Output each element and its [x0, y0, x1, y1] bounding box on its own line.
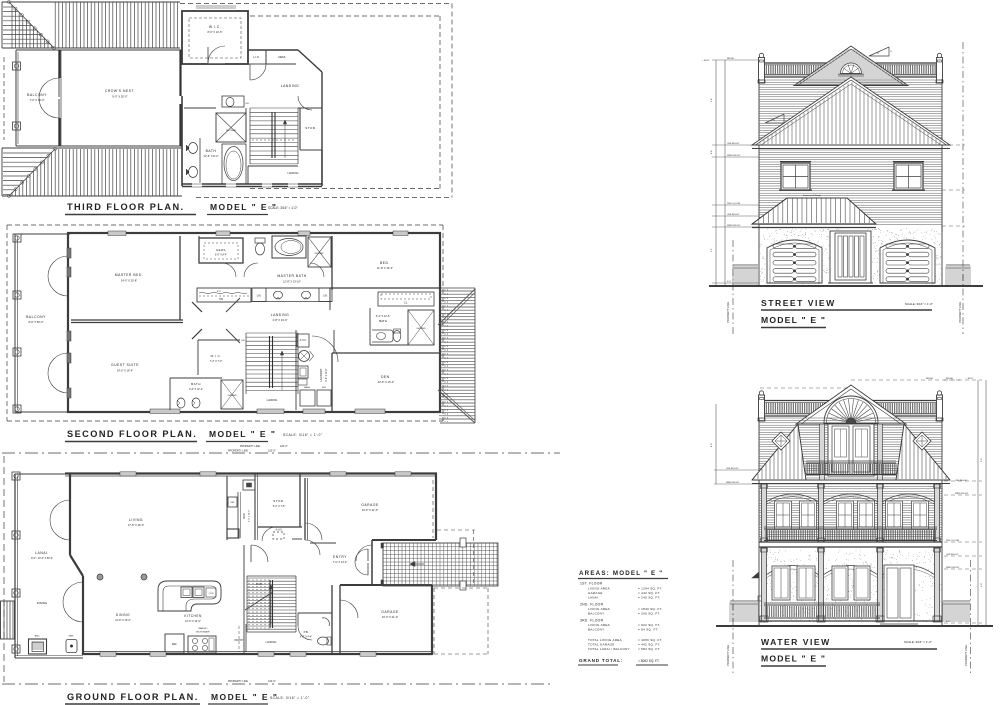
svg-text:SHOWER: SHOWER	[417, 328, 427, 330]
svg-text:PROPERTY LINE.: PROPERTY LINE.	[964, 644, 968, 666]
svg-text:DINING: DINING	[37, 601, 48, 605]
svg-text:WINDOW HT.: WINDOW HT.	[727, 155, 741, 157]
svg-text:8'-6" / 10'-0" X 50'-0": 8'-6" / 10'-0" X 50'-0"	[31, 557, 53, 560]
svg-text:LIVING AREA: LIVING AREA	[588, 607, 610, 611]
svg-text:WINDOW HT.: WINDOW HT.	[726, 482, 740, 484]
svg-text:9'-0": 9'-0"	[981, 583, 983, 587]
svg-text:6'-0" X 12'-4": 6'-0" X 12'-4"	[189, 388, 203, 391]
svg-text:DEN.: DEN.	[381, 375, 391, 379]
svg-text:TOTAL LIVING AREA: TOTAL LIVING AREA	[588, 638, 622, 642]
svg-text:RANGE /: RANGE /	[199, 627, 208, 630]
svg-text:MODEL " E ": MODEL " E "	[761, 654, 826, 664]
svg-text:BBQ: BBQ	[35, 636, 40, 638]
svg-text:120'-0": 120'-0"	[268, 450, 276, 453]
svg-text:WASH: WASH	[304, 386, 311, 389]
svg-text:= 84 SQ. FT.: = 84 SQ. FT.	[638, 628, 659, 632]
svg-text:120'-0": 120'-0"	[280, 445, 288, 448]
svg-text:7'-0" X 16'-0": 7'-0" X 16'-0"	[30, 98, 45, 102]
svg-text:BATH: BATH	[206, 149, 217, 153]
svg-text:CEILING HT.: CEILING HT.	[946, 554, 959, 556]
svg-text:0'-0": 0'-0"	[727, 281, 732, 283]
svg-text:PROPERTY LINE: PROPERTY LINE	[228, 680, 248, 683]
svg-text:PROPERTY LINE: PROPERTY LINE	[240, 445, 260, 448]
svg-text:PANTRY: PANTRY	[234, 639, 244, 642]
svg-text:2ND. FLOOR: 2ND. FLOOR	[727, 203, 741, 205]
svg-text:CEILING HT.: CEILING HT.	[726, 468, 739, 470]
svg-text:= 922 SQ. FT.: = 922 SQ. FT.	[638, 623, 661, 627]
svg-text:14'-0" X 16'-4": 14'-0" X 16'-4"	[117, 369, 133, 373]
svg-text:= 5082 SQ. FT.: = 5082 SQ. FT.	[638, 659, 660, 663]
svg-text:LANAI: LANAI	[588, 596, 598, 600]
svg-text:= 442 SQ. FT.: = 442 SQ. FT.	[638, 591, 661, 595]
svg-text:W.I.C.: W.I.C.	[210, 354, 221, 358]
svg-text:CL.: CL.	[404, 302, 408, 305]
svg-text:14'-0" X 20'-8": 14'-0" X 20'-8"	[121, 279, 137, 283]
svg-text:SECOND FLOOR PLAN.: SECOND FLOOR PLAN.	[67, 429, 197, 439]
svg-text:DN: DN	[245, 103, 249, 105]
svg-text:GROUND FLOOR PLAN.: GROUND FLOOR PLAN.	[67, 692, 199, 702]
svg-text:SHOWER: SHOWER	[228, 395, 238, 397]
svg-text:12'-0" X 14'-0": 12'-0" X 14'-0"	[185, 620, 201, 623]
svg-text:CEILING HT.: CEILING HT.	[727, 143, 740, 145]
svg-text:MODEL " E ": MODEL " E "	[761, 315, 826, 325]
svg-text:11'-8" X 15'-0": 11'-8" X 15'-0"	[115, 619, 131, 622]
svg-text:5'-4" X 12'-6": 5'-4" X 12'-6"	[376, 315, 391, 318]
svg-text:10'-0" X 21'-0": 10'-0" X 21'-0"	[362, 508, 378, 512]
svg-text:WINDOW HT.: WINDOW HT.	[946, 567, 960, 569]
svg-text:HIS: HIS	[219, 298, 223, 301]
svg-text:LIN.: LIN.	[253, 55, 260, 59]
svg-text:SCALE: 3/16" = 1'-0": SCALE: 3/16" = 1'-0"	[905, 302, 933, 306]
svg-text:LANDING: LANDING	[267, 399, 278, 402]
svg-text:8'-0" X 10'-6": 8'-0" X 10'-6"	[208, 30, 223, 34]
svg-text:LIVING: LIVING	[129, 518, 143, 522]
svg-text:OVN: OVN	[209, 593, 214, 595]
svg-text:11'-8" X 16'-4": 11'-8" X 16'-4"	[377, 266, 393, 270]
svg-text:STOR: STOR	[256, 583, 263, 586]
svg-text:WATER VIEW: WATER VIEW	[761, 637, 831, 647]
svg-text:THIRD FLOOR PLAN.: THIRD FLOOR PLAN.	[67, 202, 185, 212]
svg-text:ENTRY: ENTRY	[333, 555, 347, 559]
svg-text:9'-0": 9'-0"	[981, 458, 983, 462]
svg-text:6'-0" X 4'-4": 6'-0" X 4'-4"	[300, 637, 312, 639]
svg-text:2ND. FLOOR: 2ND. FLOOR	[580, 603, 604, 607]
svg-text:LAUNDRY: LAUNDRY	[319, 368, 323, 381]
svg-text:REF.: REF.	[172, 643, 178, 646]
svg-text:12'-8" X 13'-10": 12'-8" X 13'-10"	[283, 280, 301, 284]
svg-text:CEILING HT.: CEILING HT.	[727, 214, 740, 216]
svg-text:7'-0" X 14'-0": 7'-0" X 14'-0"	[333, 561, 348, 564]
svg-text:17'-8" X 26'-0": 17'-8" X 26'-0"	[128, 523, 144, 527]
svg-text:HERS: HERS	[216, 248, 226, 252]
svg-text:CROW'S NEST.: CROW'S NEST.	[105, 89, 135, 93]
svg-text:9'-0" X 12'-6": 9'-0" X 12'-6"	[326, 368, 328, 381]
svg-text:6'-0" X 8'-4": 6'-0" X 8'-4"	[215, 255, 227, 257]
svg-text:DRY: DRY	[322, 387, 327, 389]
svg-text:120'-0": 120'-0"	[268, 680, 276, 683]
svg-text:LIN.: LIN.	[323, 295, 328, 298]
svg-text:BALCONY: BALCONY	[26, 315, 46, 319]
svg-text:9'-8": 9'-8"	[711, 98, 713, 102]
svg-text:= 4056 SQ. FT.: = 4056 SQ. FT.	[638, 638, 662, 642]
svg-text:BALCONY: BALCONY	[588, 628, 604, 632]
svg-text:GARAGE: GARAGE	[361, 503, 379, 507]
svg-text:= 260 SQ. FT.: = 260 SQ. FT.	[638, 612, 661, 616]
svg-text:STREET VIEW: STREET VIEW	[761, 298, 836, 308]
svg-text:BATH: BATH	[379, 319, 387, 323]
svg-text:BAR: BAR	[242, 513, 246, 518]
svg-text:GARAGE: GARAGE	[588, 591, 603, 595]
svg-text:SCALE: 3/16" = 1'-0": SCALE: 3/16" = 1'-0"	[268, 206, 298, 210]
svg-text:LIVING AREA: LIVING AREA	[588, 587, 610, 591]
svg-text:LANDING: LANDING	[287, 172, 298, 175]
svg-text:8'-0": 8'-0"	[217, 291, 222, 293]
svg-text:DESK: DESK	[278, 55, 285, 59]
svg-text:BATH: BATH	[191, 382, 201, 386]
svg-text:MODEL " E ": MODEL " E "	[209, 429, 276, 439]
svg-text:WINDOW HT.: WINDOW HT.	[955, 493, 969, 495]
svg-text:MICROWAVE: MICROWAVE	[196, 631, 210, 634]
svg-text:= 1840 SQ. FT.: = 1840 SQ. FT.	[638, 607, 662, 611]
svg-text:CEILING HT.: CEILING HT.	[955, 480, 968, 482]
svg-text:8'-0": 8'-0"	[711, 443, 713, 447]
svg-text:BALCONY: BALCONY	[27, 93, 47, 97]
svg-text:SCALE: 3/16" = 1'-0": SCALE: 3/16" = 1'-0"	[283, 433, 323, 437]
svg-text:12'-8" X 16'-4": 12'-8" X 16'-4"	[378, 380, 394, 384]
svg-text:0'-0": 0'-0"	[946, 621, 951, 623]
svg-text:SCALE: 3/16" = 1'-0": SCALE: 3/16" = 1'-0"	[270, 696, 310, 700]
svg-text:P.B.: P.B.	[304, 630, 309, 634]
svg-text:LANDING: LANDING	[266, 641, 277, 644]
svg-text:= 442 SQ. FT.: = 442 SQ. FT.	[638, 643, 661, 647]
svg-text:SCALE: 3/16" = 1'-0": SCALE: 3/16" = 1'-0"	[904, 640, 932, 644]
svg-text:A.H.U.: A.H.U.	[275, 529, 282, 532]
svg-text:GARAGE: GARAGE	[381, 610, 399, 614]
svg-text:AREAS: MODEL " E ": AREAS: MODEL " E "	[579, 570, 663, 577]
svg-text:= 240 SQ. FT.: = 240 SQ. FT.	[638, 596, 661, 600]
svg-text:W.I.C.: W.I.C.	[209, 25, 221, 29]
svg-text:TOTAL LANAI / BALCONY: TOTAL LANAI / BALCONY	[588, 647, 630, 651]
svg-text:WINDOW HT.: WINDOW HT.	[727, 225, 741, 227]
svg-text:STOR.: STOR.	[305, 126, 317, 130]
svg-text:PROPERTY LINE.: PROPERTY LINE.	[958, 301, 962, 323]
svg-text:DINING: DINING	[116, 613, 130, 617]
svg-text:TOTAL GARAGE: TOTAL GARAGE	[588, 643, 615, 647]
svg-text:LANDING: LANDING	[271, 313, 290, 317]
svg-text:MASTER BED.: MASTER BED.	[115, 273, 144, 277]
svg-text:9'-0" X 20'-0": 9'-0" X 20'-0"	[112, 95, 128, 99]
svg-text:PROPERTY LINE: PROPERTY LINE	[228, 450, 248, 453]
svg-text:9'-2": 9'-2"	[711, 248, 713, 252]
svg-text:A.H.U.: A.H.U.	[300, 339, 307, 342]
svg-text:SHOWER: SHOWER	[226, 130, 236, 132]
svg-text:1ST. FLOOR: 1ST. FLOOR	[580, 582, 603, 586]
svg-text:5'-2" X 7'-8": 5'-2" X 7'-8"	[273, 505, 286, 508]
svg-text:3RD. FLOOR: 3RD. FLOOR	[580, 619, 604, 623]
svg-text:LANAI.: LANAI.	[35, 551, 49, 555]
svg-text:10'-0" X 21'-0": 10'-0" X 21'-0"	[382, 615, 398, 619]
svg-text:GUEST SUITE: GUEST SUITE	[111, 363, 139, 367]
svg-text:SINK: SINK	[68, 636, 74, 638]
svg-text:8'-6" X 50'-0": 8'-6" X 50'-0"	[29, 320, 44, 324]
svg-text:4'-8" X 24'-0": 4'-8" X 24'-0"	[273, 318, 288, 322]
svg-text:12'-6" X 8'-2": 12'-6" X 8'-2"	[204, 154, 219, 158]
svg-text:GRAND TOTAL:: GRAND TOTAL:	[579, 658, 623, 663]
svg-text:LIVING AREA: LIVING AREA	[588, 623, 610, 627]
svg-text:MODEL " E ": MODEL " E "	[211, 692, 278, 702]
svg-text:7'-2" X 7'-0": 7'-2" X 7'-0"	[210, 360, 223, 363]
svg-text:= 584 SQ. FT.: = 584 SQ. FT.	[638, 647, 661, 651]
svg-text:+ 38'-8": + 38'-8"	[702, 60, 710, 62]
svg-text:RIDGE: RIDGE	[926, 378, 933, 380]
svg-text:BED.: BED.	[380, 261, 390, 265]
svg-text:RIDGE: RIDGE	[727, 58, 734, 60]
svg-text:DN: DN	[241, 340, 245, 342]
svg-text:2ND. FLOOR: 2ND. FLOOR	[946, 540, 960, 542]
svg-text:+ 38'-0": + 38'-0"	[966, 378, 974, 380]
svg-text:LANDING: LANDING	[281, 84, 300, 88]
svg-text:LIN.: LIN.	[257, 295, 262, 298]
svg-text:PROPERTY LINE.: PROPERTY LINE.	[726, 644, 730, 666]
svg-text:8'-8": 8'-8"	[711, 150, 713, 154]
svg-text:MASTER BATH: MASTER BATH	[277, 274, 306, 278]
svg-text:Dimensional Shingle: Dimensional Shingle	[803, 195, 822, 197]
svg-text:PROPERTY LINE.: PROPERTY LINE.	[726, 301, 730, 323]
svg-text:BALCONY: BALCONY	[588, 612, 604, 616]
svg-text:= 1294 SQ. FT.: = 1294 SQ. FT.	[638, 587, 662, 591]
svg-text:RIDGE: RIDGE	[946, 378, 953, 380]
svg-text:STOR.: STOR.	[273, 499, 285, 503]
svg-text:KITCHEN: KITCHEN	[184, 614, 202, 618]
svg-text:9'-0" X 10'-0": 9'-0" X 10'-0"	[249, 510, 251, 522]
svg-text:SHOWER: SHOWER	[315, 253, 325, 255]
